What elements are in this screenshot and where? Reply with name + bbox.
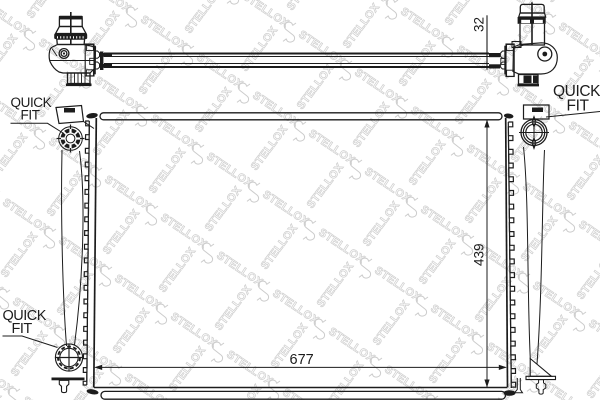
svg-text:FIT: FIT [12, 321, 33, 337]
svg-text:FIT: FIT [21, 108, 40, 123]
svg-text:FIT: FIT [567, 98, 590, 115]
svg-text:32: 32 [472, 17, 487, 32]
svg-text:439: 439 [472, 243, 487, 266]
svg-text:677: 677 [290, 352, 314, 368]
